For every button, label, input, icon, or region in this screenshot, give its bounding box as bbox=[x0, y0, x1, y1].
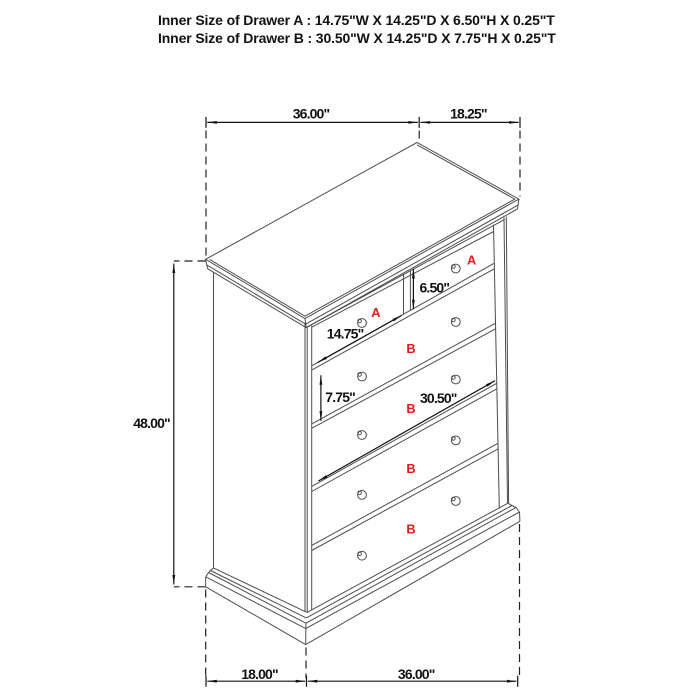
svg-text:B: B bbox=[406, 522, 415, 537]
svg-text:36.00": 36.00" bbox=[293, 105, 330, 121]
svg-text:18.25": 18.25" bbox=[450, 105, 487, 121]
svg-text:A: A bbox=[371, 305, 380, 320]
svg-text:48.00": 48.00" bbox=[133, 415, 170, 431]
svg-text:6.50": 6.50" bbox=[420, 280, 450, 296]
svg-text:B: B bbox=[406, 341, 415, 356]
svg-text:Inner Size of Drawer A : 14.75: Inner Size of Drawer A : 14.75"W X 14.25… bbox=[158, 12, 555, 28]
svg-text:14.75": 14.75" bbox=[327, 326, 364, 342]
svg-text:B: B bbox=[406, 401, 415, 416]
svg-text:18.00": 18.00" bbox=[241, 666, 278, 682]
svg-text:30.50": 30.50" bbox=[420, 390, 457, 406]
svg-text:Inner Size of Drawer B : 30.50: Inner Size of Drawer B : 30.50"W X 14.25… bbox=[158, 30, 556, 46]
svg-text:36.00": 36.00" bbox=[398, 666, 435, 682]
svg-text:A: A bbox=[467, 253, 476, 268]
svg-text:7.75": 7.75" bbox=[325, 389, 355, 405]
svg-text:B: B bbox=[406, 461, 415, 476]
